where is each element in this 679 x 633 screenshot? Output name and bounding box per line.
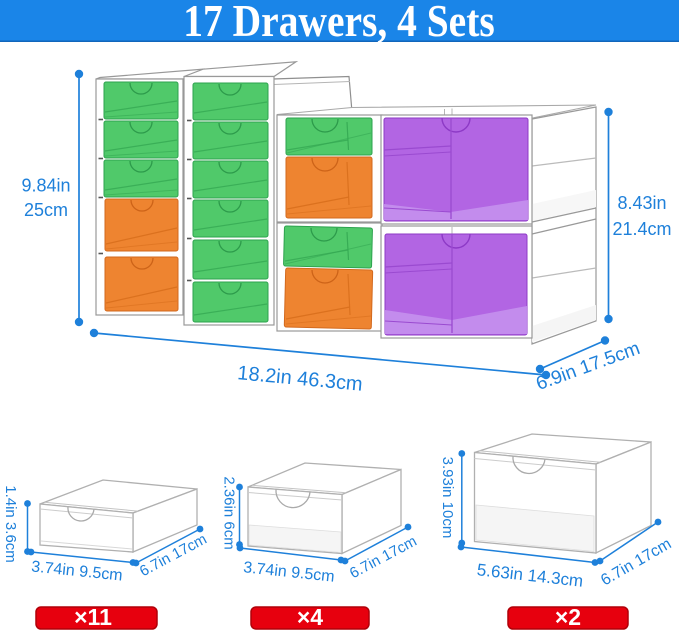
svg-text:2.36in 6cm: 2.36in 6cm [221, 476, 238, 549]
svg-text:21.4cm: 21.4cm [612, 219, 671, 239]
svg-text:17 Drawers, 4 Sets: 17 Drawers, 4 Sets [183, 0, 494, 47]
svg-text:×2: ×2 [555, 604, 581, 630]
svg-text:1.4in 3.6cm: 1.4in 3.6cm [2, 485, 19, 563]
svg-text:6.9in 17.5cm: 6.9in 17.5cm [533, 338, 642, 395]
svg-text:8.43in: 8.43in [617, 193, 666, 213]
svg-text:25cm: 25cm [24, 200, 68, 220]
svg-text:3.74in 9.5cm: 3.74in 9.5cm [31, 558, 124, 584]
svg-text:3.93in 10cm: 3.93in 10cm [439, 457, 456, 539]
svg-text:×11: ×11 [74, 604, 112, 630]
svg-text:18.2in 46.3cm: 18.2in 46.3cm [236, 362, 363, 396]
svg-text:3.74in 9.5cm: 3.74in 9.5cm [243, 559, 336, 585]
svg-text:9.84in: 9.84in [21, 176, 70, 196]
svg-text:×4: ×4 [297, 604, 323, 630]
svg-text:5.63in 14.3cm: 5.63in 14.3cm [476, 560, 584, 591]
